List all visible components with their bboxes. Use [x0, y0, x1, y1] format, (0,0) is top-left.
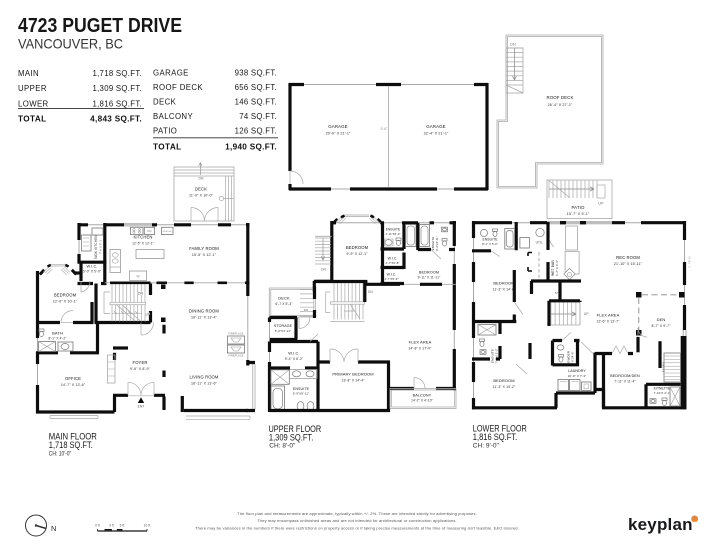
- svg-text:DECK: DECK: [153, 98, 177, 107]
- svg-text:74 SQ.FT.: 74 SQ.FT.: [239, 112, 277, 121]
- svg-text:ROOF DECK: ROOF DECK: [546, 95, 573, 100]
- svg-text:1,718 SQ.FT.: 1,718 SQ.FT.: [92, 69, 142, 78]
- svg-text:ENSUITE: ENSUITE: [293, 387, 310, 391]
- svg-text:32'-4" X 21'-1": 32'-4" X 21'-1": [424, 132, 449, 136]
- svg-text:10'-9" X 7'-3": 10'-9" X 7'-3": [568, 374, 587, 378]
- svg-text:DECK: DECK: [278, 296, 290, 301]
- svg-text:DW: DW: [147, 229, 152, 233]
- svg-text:CH: 10'-0": CH: 10'-0": [49, 451, 72, 458]
- svg-text:PATIO: PATIO: [571, 205, 585, 210]
- svg-text:UP: UP: [598, 202, 604, 206]
- svg-text:UP: UP: [584, 312, 589, 316]
- svg-text:CH: 8'-0": CH: 8'-0": [269, 443, 295, 450]
- svg-text:W.I.C.: W.I.C.: [388, 257, 398, 261]
- svg-text:BALCONY: BALCONY: [153, 112, 193, 121]
- svg-text:FLEX AREA: FLEX AREA: [409, 340, 432, 345]
- svg-text:DN: DN: [510, 43, 516, 47]
- svg-text:DN: DN: [198, 177, 204, 181]
- svg-text:9'-9" X 12'-1": 9'-9" X 12'-1": [347, 252, 369, 256]
- svg-text:BEDROOM: BEDROOM: [493, 281, 514, 286]
- svg-text:5'-9"X8'-11": 5'-9"X8'-11": [293, 392, 310, 396]
- svg-text:16'-11" X 13'-6": 16'-11" X 13'-6": [191, 382, 218, 386]
- svg-text:26'-4" X 27'-1": 26'-4" X 27'-1": [548, 103, 573, 107]
- svg-text:UP: UP: [145, 313, 151, 317]
- svg-text:1,309 SQ.FT.: 1,309 SQ.FT.: [269, 432, 313, 442]
- svg-text:TOTAL: TOTAL: [153, 143, 182, 152]
- svg-text:BEDROOM: BEDROOM: [54, 293, 77, 298]
- svg-text:DN: DN: [321, 268, 326, 272]
- svg-text:9'-6": 9'-6": [381, 127, 388, 131]
- svg-text:STORAGE: STORAGE: [274, 324, 293, 328]
- svg-text:9'-6" X 8'-9": 9'-6" X 8'-9": [130, 367, 151, 371]
- svg-text:LIVING ROOM: LIVING ROOM: [189, 375, 218, 380]
- svg-text:FIREPLACE: FIREPLACE: [228, 354, 243, 358]
- svg-text:C. PATIO: C. PATIO: [689, 256, 692, 267]
- svg-text:9'-4" X 6'-2": 9'-4" X 6'-2": [285, 357, 304, 361]
- svg-text:WOK KITCHEN: WOK KITCHEN: [94, 235, 98, 259]
- svg-text:15'-7" X 5'-1": 15'-7" X 5'-1": [567, 212, 590, 216]
- svg-text:12'-5" X 12'-1": 12'-5" X 12'-1": [132, 241, 154, 245]
- svg-text:8'-1" X 4'-2": 8'-1" X 4'-2": [49, 337, 67, 341]
- svg-text:LAUNDRY: LAUNDRY: [568, 369, 586, 373]
- svg-text:DN: DN: [368, 290, 373, 294]
- svg-text:11'-3" X 14'-6": 11'-3" X 14'-6": [493, 288, 516, 292]
- svg-text:7'-11" X 11'-4": 7'-11" X 11'-4": [614, 380, 635, 384]
- svg-text:1,940 SQ.FT.: 1,940 SQ.FT.: [225, 143, 277, 152]
- svg-text:5/5: 5/5: [555, 291, 560, 295]
- svg-text:DEN: DEN: [657, 317, 666, 322]
- svg-text:21'-10" X 15'-11": 21'-10" X 15'-11": [614, 262, 643, 266]
- svg-text:KITCHEN: KITCHEN: [133, 234, 152, 239]
- svg-text:146 SQ.FT.: 146 SQ.FT.: [235, 98, 277, 107]
- svg-text:FAMILY ROOM: FAMILY ROOM: [189, 246, 219, 251]
- svg-text:BEDROOM: BEDROOM: [493, 378, 514, 383]
- svg-text:6'-7 X 5'-3": 6'-7 X 5'-3": [275, 302, 293, 306]
- svg-text:BEDROOM/DEN: BEDROOM/DEN: [610, 374, 640, 378]
- svg-text:N: N: [51, 524, 57, 533]
- svg-text:4'-7"X5'-9": 4'-7"X5'-9": [384, 277, 398, 281]
- svg-text:The floor plan and measurement: The floor plan and measurements are appr…: [237, 511, 477, 516]
- svg-text:FLEX AREA: FLEX AREA: [597, 313, 620, 318]
- svg-text:PRIMARY BEDROOM: PRIMARY BEDROOM: [332, 372, 373, 377]
- svg-text:7'-10"X 4'-1": 7'-10"X 4'-1": [654, 391, 671, 395]
- svg-text:14'-8" X 17'-0": 14'-8" X 17'-0": [409, 347, 433, 351]
- svg-text:SAUNA: SAUNA: [662, 362, 666, 372]
- svg-text:14'-7" X 13'-6": 14'-7" X 13'-6": [61, 383, 86, 387]
- svg-text:DINING ROOM: DINING ROOM: [189, 309, 219, 314]
- svg-text:OFFICE: OFFICE: [65, 376, 81, 381]
- svg-text:656 SQ.FT.: 656 SQ.FT.: [235, 83, 277, 92]
- svg-text:4723 PUGET DRIVE: 4723 PUGET DRIVE: [18, 14, 182, 37]
- svg-text:DECK: DECK: [195, 187, 207, 192]
- svg-text:MAIN: MAIN: [18, 69, 39, 78]
- svg-text:1,816 SQ.FT.: 1,816 SQ.FT.: [92, 99, 142, 108]
- svg-text:0 ft: 0 ft: [95, 524, 100, 528]
- svg-text:8'-1" X 5'-0": 8'-1" X 5'-0": [482, 242, 498, 246]
- svg-text:8'-7" X 9'-7": 8'-7" X 9'-7": [652, 324, 672, 328]
- svg-text:KITNETTE: KITNETTE: [654, 387, 671, 391]
- svg-text:BEDROOM: BEDROOM: [419, 271, 439, 275]
- svg-text:PATIO: PATIO: [153, 127, 177, 136]
- svg-text:938 SQ.FT.: 938 SQ.FT.: [235, 69, 277, 78]
- svg-text:ENSUITE: ENSUITE: [483, 238, 499, 242]
- svg-text:1,816 SQ.FT.: 1,816 SQ.FT.: [473, 432, 517, 442]
- svg-text:TOTAL: TOTAL: [18, 115, 47, 124]
- svg-text:10 ft: 10 ft: [144, 524, 151, 528]
- svg-text:4'-7"X6'-8": 4'-7"X6'-8": [385, 261, 399, 265]
- svg-text:BALCONY: BALCONY: [413, 394, 432, 398]
- svg-text:FRIDGE: FRIDGE: [163, 231, 172, 233]
- svg-text:GARAGE: GARAGE: [426, 124, 445, 129]
- svg-text:DN: DN: [138, 292, 144, 296]
- svg-text:CH: 9'-0": CH: 9'-0": [473, 442, 499, 449]
- svg-text:14'-2" X 4'-10": 14'-2" X 4'-10": [411, 399, 433, 403]
- svg-text:They may encompass unfinished: They may encompass unfinished areas and …: [257, 518, 456, 523]
- svg-text:W.I.C.: W.I.C.: [288, 351, 300, 356]
- svg-text:7'-9 X 5'-1: 7'-9 X 5'-1: [99, 240, 103, 254]
- svg-text:ENT: ENT: [138, 405, 145, 409]
- svg-text:4'-11"X5'-0": 4'-11"X5'-0": [386, 232, 401, 236]
- svg-text:5'-0"X4'-11": 5'-0"X4'-11": [275, 329, 292, 333]
- svg-text:ENSUITE: ENSUITE: [386, 228, 401, 232]
- svg-text:VANCOUVER, BC: VANCOUVER, BC: [18, 36, 123, 52]
- svg-text:5 ft: 5 ft: [120, 524, 125, 528]
- svg-text:16'-11" X 13'-4": 16'-11" X 13'-4": [191, 316, 218, 320]
- svg-text:9'-11" X 11'-11": 9'-11" X 11'-11": [418, 276, 441, 280]
- svg-text:W.I.C.: W.I.C.: [87, 265, 98, 269]
- svg-text:REC ROOM: REC ROOM: [616, 255, 640, 260]
- svg-text:UPPER: UPPER: [18, 84, 47, 93]
- svg-text:W.I.C.: W.I.C.: [387, 273, 397, 277]
- svg-text:ENSUITE: ENSUITE: [431, 237, 435, 251]
- svg-text:LOWER: LOWER: [18, 99, 49, 108]
- svg-text:ROOF DECK: ROOF DECK: [153, 83, 203, 92]
- svg-text:5'-0"X4'-6": 5'-0"X4'-6": [570, 351, 574, 364]
- svg-text:DN: DN: [304, 308, 309, 312]
- svg-text:12'-0" X 10'-1": 12'-0" X 10'-1": [53, 300, 78, 304]
- svg-text:BATH: BATH: [52, 331, 63, 336]
- svg-text:FIREPLACE: FIREPLACE: [228, 332, 243, 336]
- svg-text:UTIL: UTIL: [536, 241, 543, 245]
- svg-text:1,309 SQ.FT.: 1,309 SQ.FT.: [92, 84, 142, 93]
- svg-text:20'-0" X 21'-1": 20'-0" X 21'-1": [326, 132, 351, 136]
- svg-text:There may be variances in the: There may be variances in the numbers if…: [195, 525, 519, 530]
- svg-text:12'-6" X 13'-7": 12'-6" X 13'-7": [597, 320, 621, 324]
- svg-text:6'-2" X 6'-4": 6'-2" X 6'-4": [555, 260, 559, 276]
- svg-text:11'-0" X 10'-0": 11'-0" X 10'-0": [189, 194, 214, 198]
- svg-text:126 SQ.FT.: 126 SQ.FT.: [235, 127, 277, 136]
- svg-text:7'-7" X 5'-2": 7'-7" X 5'-2": [495, 348, 499, 363]
- svg-text:1,718 SQ.FT.: 1,718 SQ.FT.: [49, 440, 93, 450]
- svg-text:FOYER: FOYER: [133, 360, 148, 365]
- svg-text:13'-8" X 14'-4": 13'-8" X 14'-4": [342, 379, 366, 383]
- svg-text:11'-3" X 10'-2": 11'-3" X 10'-2": [493, 385, 516, 389]
- svg-text:3 ft: 3 ft: [109, 524, 114, 528]
- svg-text:POWDER: POWDER: [567, 350, 571, 365]
- svg-text:keyplan: keyplan: [628, 515, 693, 534]
- svg-text:GARAGE: GARAGE: [153, 69, 189, 78]
- svg-text:4,843 SQ.FT.: 4,843 SQ.FT.: [90, 115, 142, 124]
- svg-text:GARAGE: GARAGE: [328, 124, 347, 129]
- svg-text:ENSUITE: ENSUITE: [491, 349, 495, 363]
- svg-text:5'-0" X 5'-0": 5'-0" X 5'-0": [83, 270, 101, 274]
- svg-text:BEDROOM: BEDROOM: [346, 245, 369, 250]
- svg-text:8'-4"X4'-11": 8'-4"X4'-11": [435, 236, 439, 251]
- svg-text:15'-5" X 12'-1": 15'-5" X 12'-1": [192, 253, 217, 257]
